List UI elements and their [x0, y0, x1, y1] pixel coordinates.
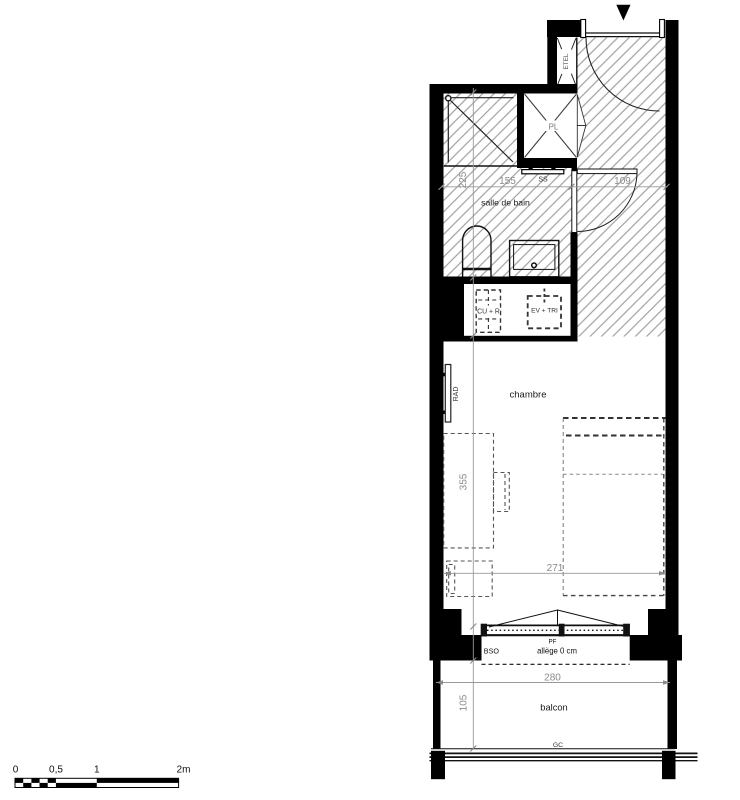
svg-text:105: 105	[459, 694, 470, 711]
svg-text:ETEL: ETEL	[563, 53, 570, 69]
svg-text:SS: SS	[538, 176, 548, 183]
svg-text:1: 1	[94, 764, 100, 775]
svg-text:PF: PF	[549, 639, 557, 646]
svg-text:109: 109	[614, 176, 631, 187]
svg-text:salle de bain: salle de bain	[481, 197, 530, 207]
svg-text:RAD: RAD	[453, 387, 460, 402]
svg-text:280: 280	[544, 672, 561, 683]
svg-text:allège 0 cm: allège 0 cm	[537, 646, 577, 655]
svg-text:0,5: 0,5	[49, 764, 63, 775]
svg-text:271: 271	[547, 563, 564, 574]
svg-text:225: 225	[458, 171, 469, 188]
svg-text:GC: GC	[553, 742, 563, 749]
svg-text:355: 355	[459, 473, 470, 490]
svg-text:balcon: balcon	[540, 702, 567, 712]
svg-text:2m: 2m	[177, 764, 191, 775]
svg-text:CU + R: CU + R	[477, 308, 500, 315]
svg-text:155: 155	[499, 176, 516, 187]
svg-text:0: 0	[13, 764, 19, 775]
svg-text:PL: PL	[549, 122, 559, 131]
svg-text:BSO: BSO	[484, 646, 500, 655]
svg-text:chambre: chambre	[510, 389, 547, 400]
svg-text:EV + TRI: EV + TRI	[531, 307, 558, 314]
